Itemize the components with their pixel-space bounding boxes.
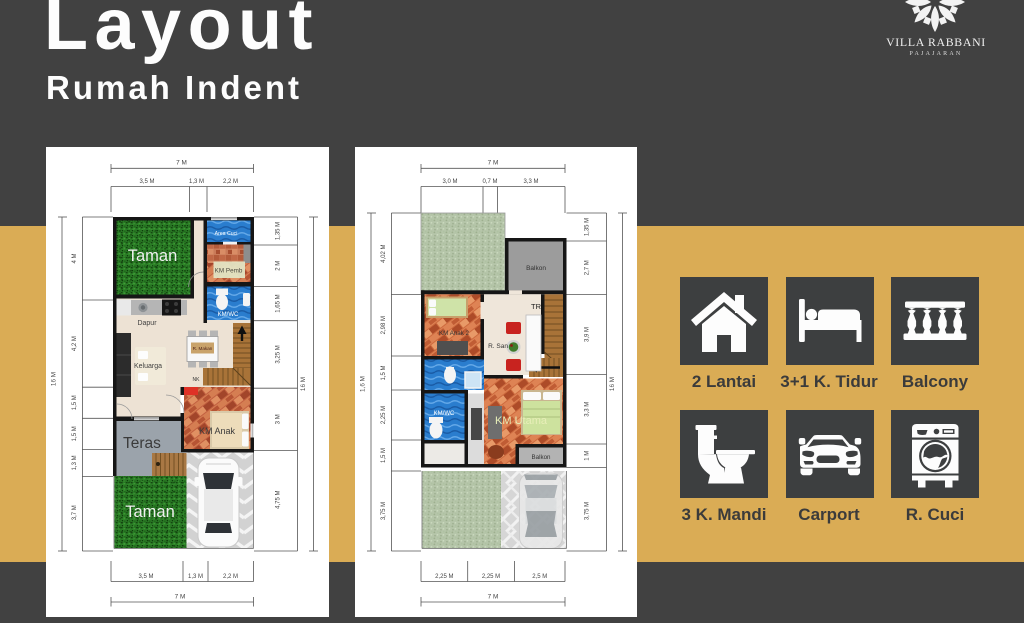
svg-text:Area Cuci: Area Cuci — [215, 231, 238, 237]
svg-text:TR: TR — [531, 302, 542, 311]
svg-text:2,5 M: 2,5 M — [532, 574, 547, 580]
svg-text:3,75 M: 3,75 M — [381, 502, 387, 520]
svg-text:3,5 M: 3,5 M — [139, 179, 154, 185]
svg-text:2,98 M: 2,98 M — [381, 316, 387, 334]
svg-text:2,2 M: 2,2 M — [223, 574, 238, 580]
svg-text:2,25 M: 2,25 M — [435, 574, 453, 580]
svg-text:PAJAJARAN: PAJAJARAN — [910, 51, 963, 57]
svg-text:2,25 M: 2,25 M — [381, 406, 387, 424]
svg-text:R. Makan: R. Makan — [193, 346, 213, 351]
svg-text:1 M: 1 M — [585, 451, 591, 461]
svg-text:16 M: 16 M — [609, 377, 616, 391]
svg-text:Teras: Teras — [123, 435, 161, 452]
svg-text:2,25 M: 2,25 M — [482, 574, 500, 580]
svg-text:KM/WC: KM/WC — [434, 411, 455, 417]
svg-text:7 M: 7 M — [176, 160, 187, 167]
svg-text:1,35 M: 1,35 M — [585, 218, 591, 236]
svg-text:2,7 M: 2,7 M — [585, 260, 591, 275]
svg-text:1,5 M: 1,5 M — [72, 395, 78, 410]
svg-text:3,9 M: 3,9 M — [585, 327, 591, 342]
svg-text:3,25 M: 3,25 M — [276, 345, 282, 363]
svg-text:3,3 M: 3,3 M — [585, 402, 591, 417]
svg-text:Balkon: Balkon — [526, 265, 546, 272]
svg-text:KM Anak: KM Anak — [199, 426, 236, 436]
svg-text:1,3 M: 1,3 M — [188, 574, 203, 580]
svg-text:4,75 M: 4,75 M — [276, 491, 282, 509]
svg-text:4,02 M: 4,02 M — [381, 245, 387, 263]
svg-text:3,3 M: 3,3 M — [523, 179, 538, 185]
svg-text:4 M: 4 M — [72, 253, 78, 263]
svg-text:7 M: 7 M — [175, 594, 186, 601]
svg-text:3,5 M: 3,5 M — [138, 574, 153, 580]
svg-text:1,5 M: 1,5 M — [72, 426, 78, 441]
svg-text:KM Anak 2: KM Anak 2 — [439, 330, 469, 337]
svg-text:4,2 M: 4,2 M — [72, 336, 78, 351]
svg-text:3,0 M: 3,0 M — [442, 179, 457, 185]
svg-text:3,75 M: 3,75 M — [585, 502, 591, 520]
svg-text:1,3 M: 1,3 M — [189, 179, 204, 185]
svg-text:7 M: 7 M — [488, 594, 499, 601]
svg-text:1,5 M: 1,5 M — [381, 365, 387, 380]
svg-text:NK: NK — [193, 377, 201, 383]
svg-text:1,65 M: 1,65 M — [276, 294, 282, 312]
svg-text:3 M: 3 M — [276, 414, 282, 424]
svg-text:2,2 M: 2,2 M — [223, 179, 238, 185]
svg-text:Balkon: Balkon — [532, 454, 551, 461]
svg-text:Taman: Taman — [128, 247, 178, 265]
svg-text:1,35 M: 1,35 M — [276, 222, 282, 240]
svg-text:1,3 M: 1,3 M — [72, 455, 78, 470]
svg-text:0,7 M: 0,7 M — [482, 179, 497, 185]
svg-text:2 M: 2 M — [276, 261, 282, 271]
svg-text:VILLA RABBANI: VILLA RABBANI — [886, 35, 986, 49]
svg-text:Keluarga: Keluarga — [134, 363, 162, 370]
svg-text:Dapur: Dapur — [137, 320, 157, 327]
svg-text:1,6 M: 1,6 M — [360, 376, 367, 392]
svg-text:3,7 M: 3,7 M — [72, 505, 78, 520]
svg-text:R. San: R. San — [488, 343, 508, 350]
svg-text:Taman: Taman — [125, 503, 175, 521]
svg-text:7 M: 7 M — [488, 160, 499, 167]
svg-text:1,5 M: 1,5 M — [381, 448, 387, 463]
svg-text:KM/WC: KM/WC — [218, 312, 239, 318]
svg-text:16 M: 16 M — [51, 372, 58, 386]
svg-text:KM Utama: KM Utama — [495, 415, 548, 427]
svg-text:KM Pemb: KM Pemb — [215, 268, 243, 275]
svg-text:16 M: 16 M — [300, 377, 307, 391]
